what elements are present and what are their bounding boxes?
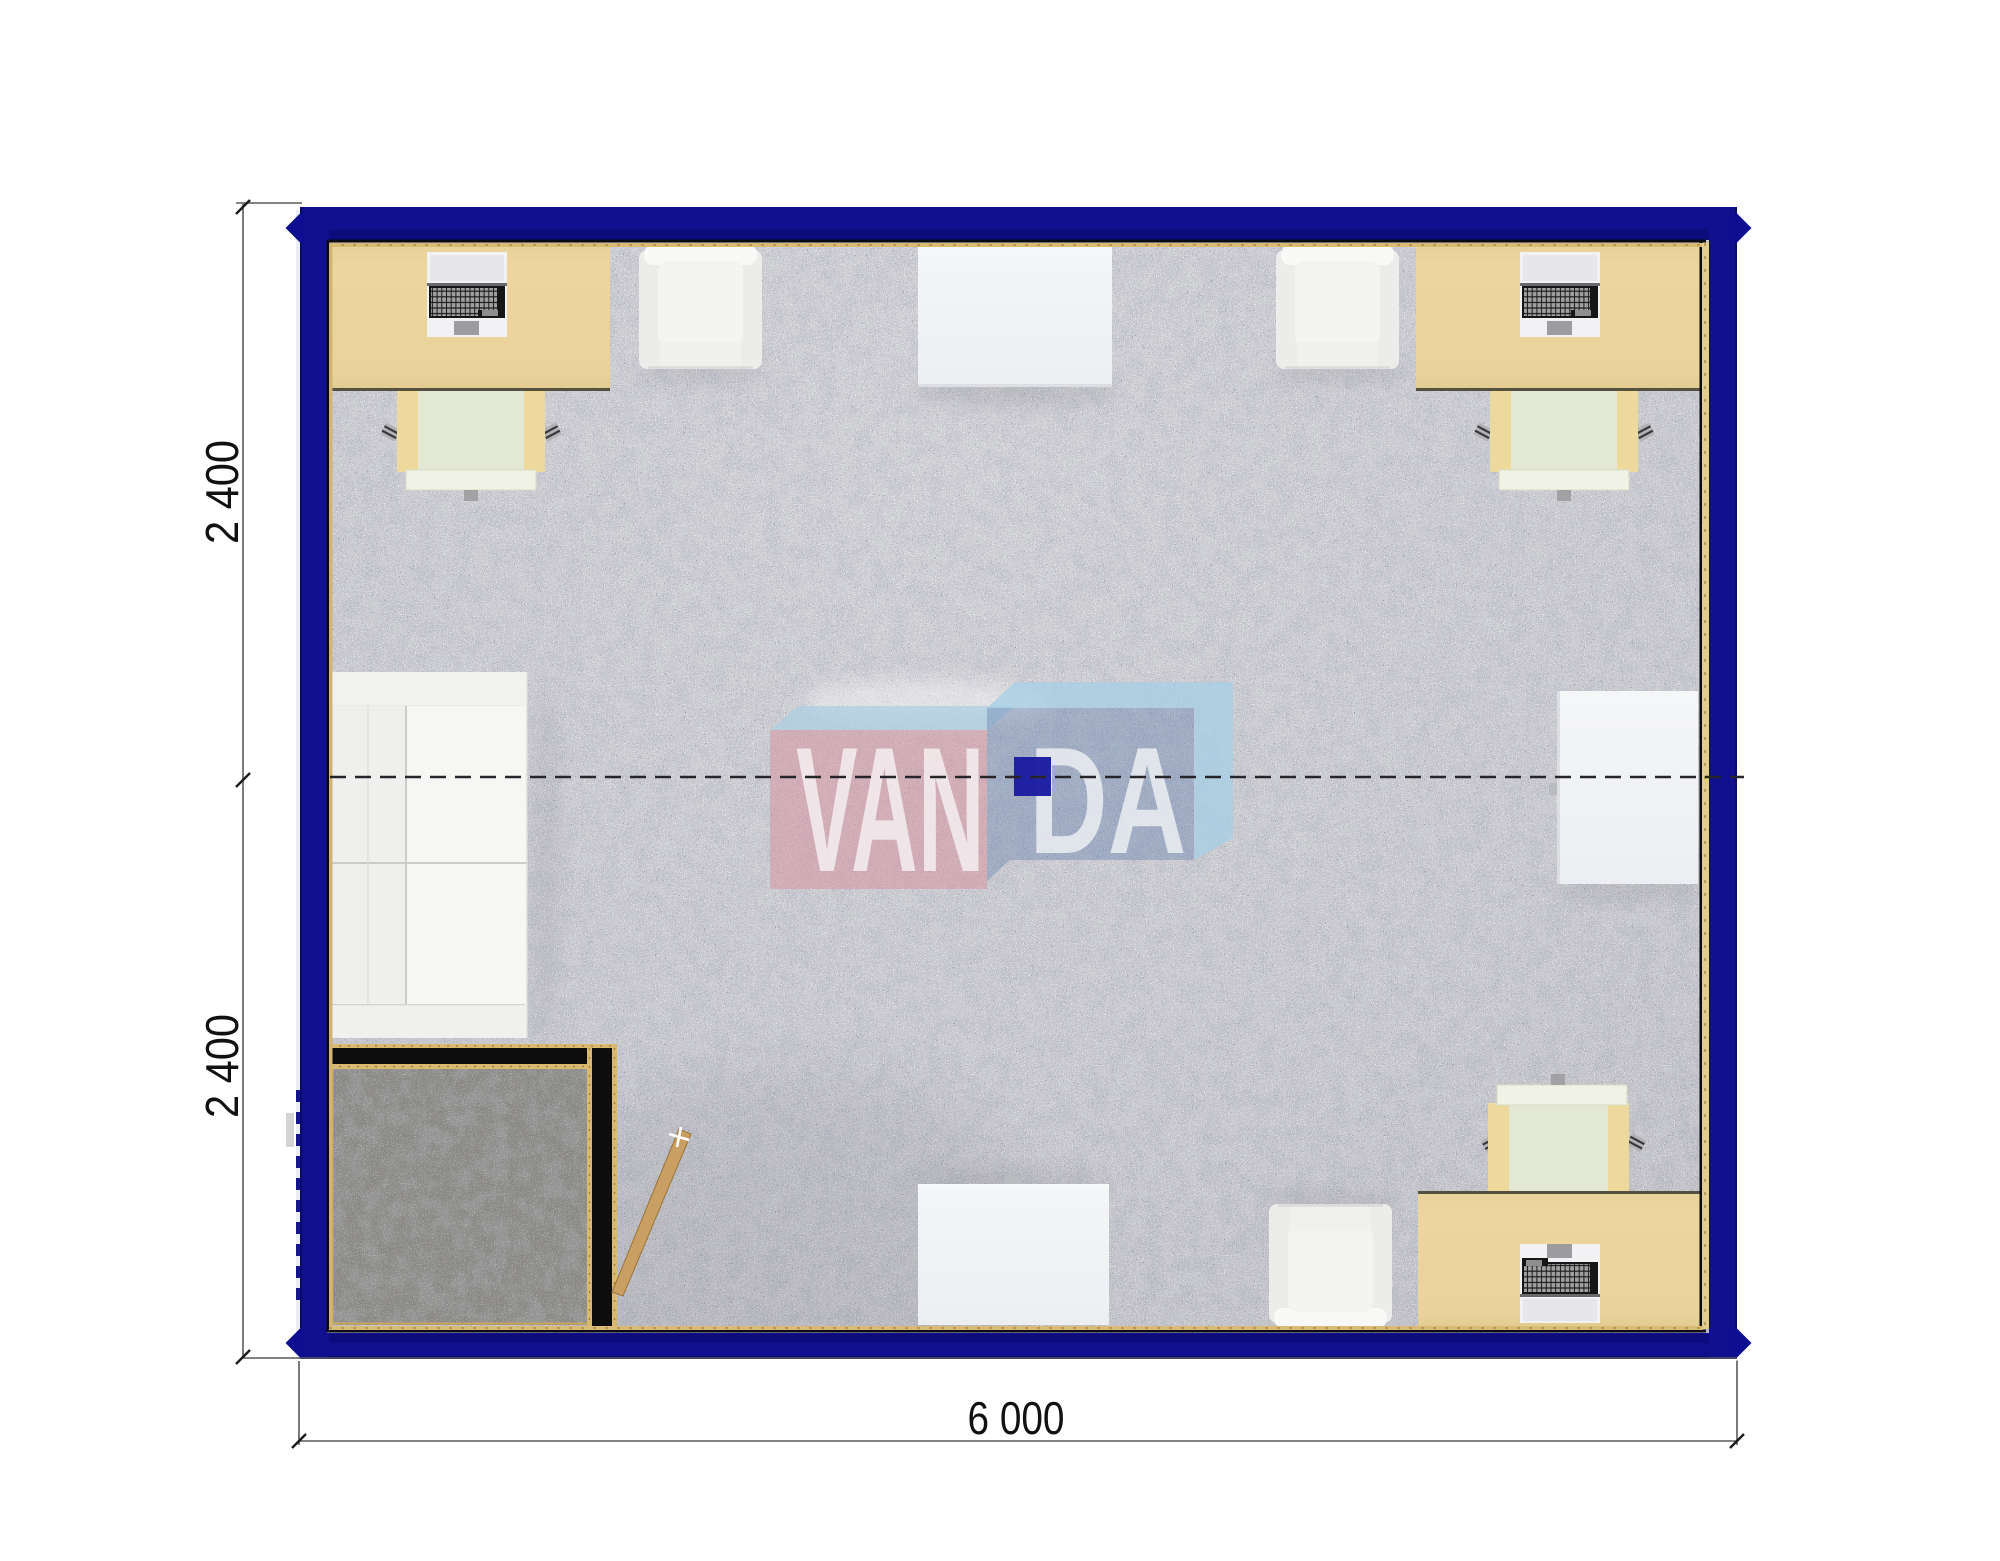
svg-text:2 400: 2 400	[196, 1014, 248, 1118]
svg-text:2 400: 2 400	[196, 440, 248, 544]
svg-text:6 000: 6 000	[968, 1392, 1065, 1444]
svg-text:VAN: VAN	[796, 709, 985, 909]
svg-text:DA: DA	[1029, 716, 1186, 885]
